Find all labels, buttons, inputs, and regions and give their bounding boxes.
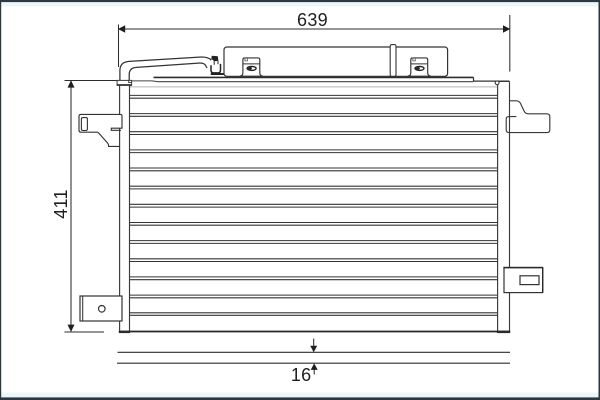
svg-text:16: 16 <box>291 365 312 385</box>
svg-text:411: 411 <box>51 189 71 219</box>
svg-text:639: 639 <box>297 10 328 30</box>
